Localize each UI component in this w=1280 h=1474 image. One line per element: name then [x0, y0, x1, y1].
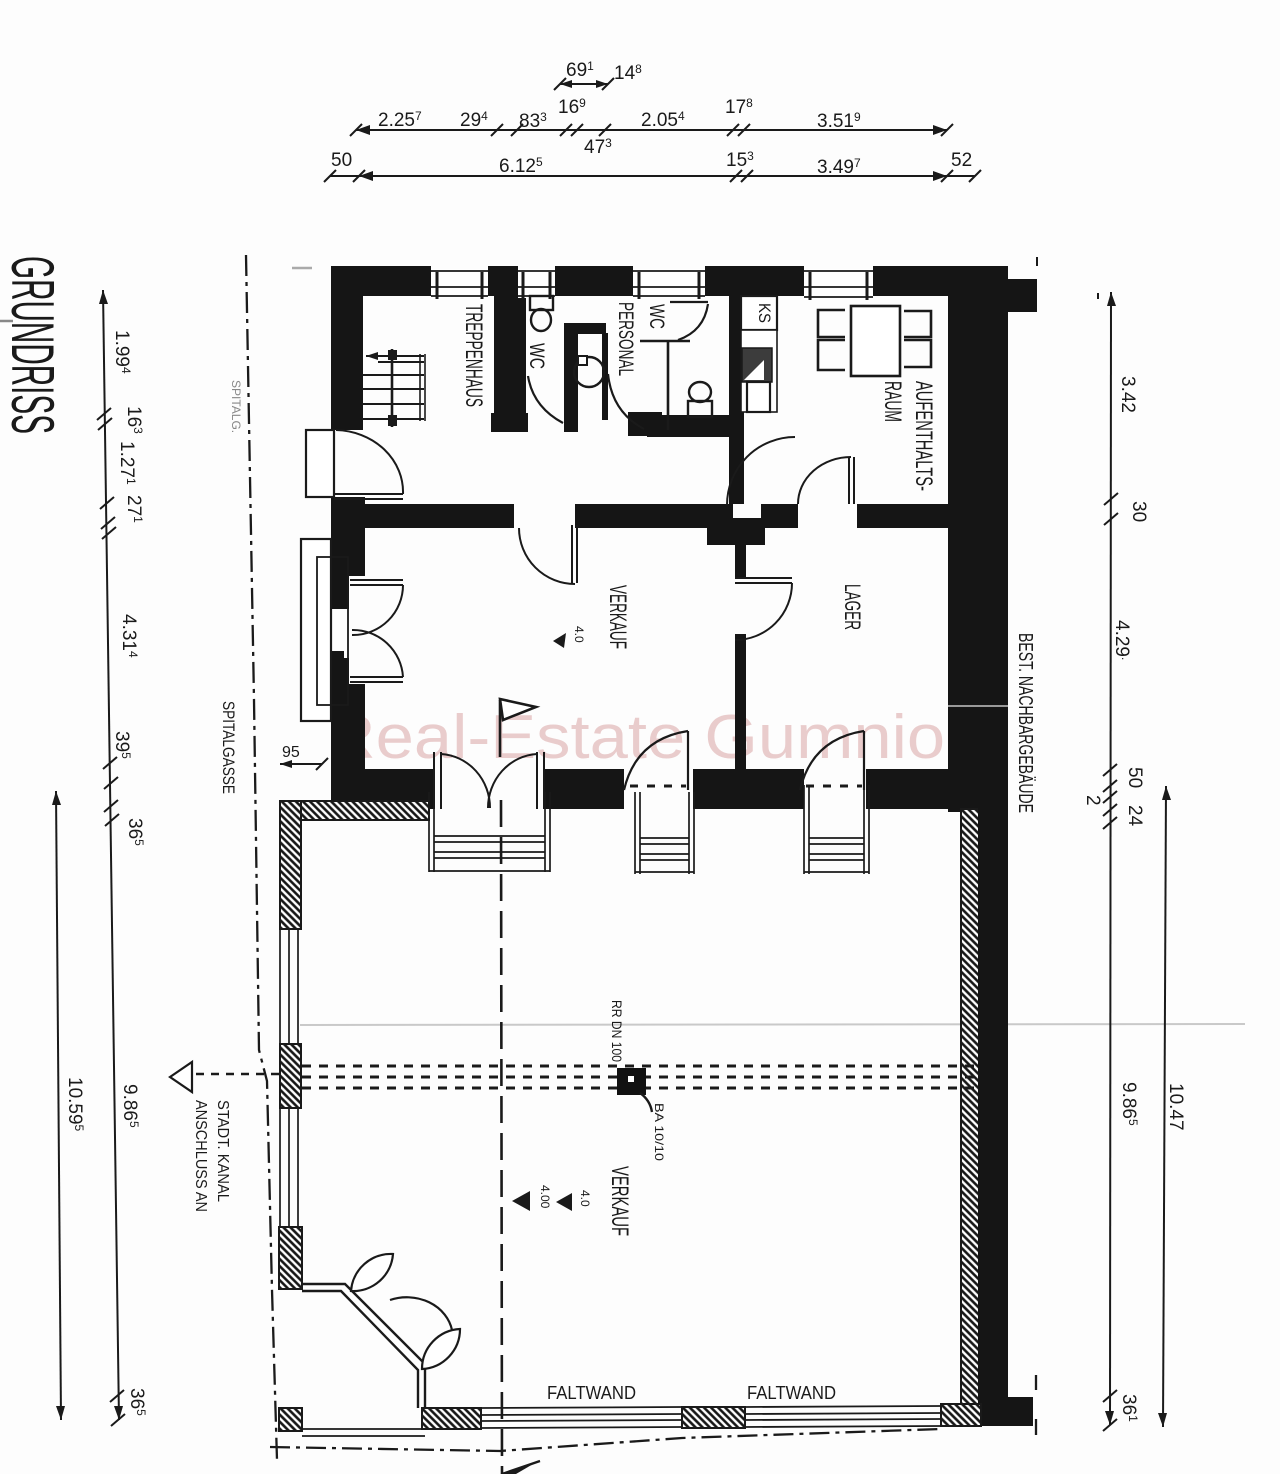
- svg-text:50: 50: [331, 150, 352, 171]
- svg-text:VERKAUF: VERKAUF: [604, 585, 631, 649]
- svg-text:SPITALGASSE: SPITALGASSE: [219, 701, 238, 794]
- svg-text:50: 50: [1124, 767, 1145, 788]
- svg-text:VERKAUF: VERKAUF: [606, 1166, 633, 1236]
- svg-text:LAGER: LAGER: [840, 584, 865, 630]
- svg-text:FALTWAND: FALTWAND: [747, 1383, 836, 1403]
- svg-text:4.0: 4.0: [578, 1190, 592, 1207]
- svg-text:95: 95: [282, 744, 300, 761]
- svg-text:FALTWAND: FALTWAND: [547, 1383, 636, 1403]
- svg-text:10.595: 10.595: [64, 1077, 86, 1132]
- svg-text:BEST. NACHBARGEBÄUDE: BEST. NACHBARGEBÄUDE: [1014, 633, 1036, 813]
- svg-text:52: 52: [951, 150, 972, 171]
- svg-text:AUFENTHALTS-: AUFENTHALTS-: [910, 381, 937, 491]
- svg-text:RAUM: RAUM: [879, 381, 906, 422]
- svg-text:STADT. KANAL: STADT. KANAL: [214, 1100, 231, 1202]
- svg-text:GRUNDRISS: GRUNDRISS: [0, 256, 66, 434]
- svg-text:WC: WC: [645, 304, 668, 329]
- svg-text:2: 2: [1082, 795, 1103, 806]
- svg-text:3.42: 3.42: [1117, 376, 1138, 413]
- svg-text:ANSCHLUSS AN: ANSCHLUSS AN: [192, 1100, 209, 1212]
- svg-text:RR DN 100: RR DN 100: [609, 1000, 625, 1062]
- svg-text:SPITALG.: SPITALG.: [229, 380, 243, 433]
- svg-text:4.00: 4.00: [538, 1185, 552, 1209]
- svg-text:PERSONAL: PERSONAL: [614, 302, 637, 376]
- svg-text:WC: WC: [525, 343, 548, 369]
- svg-text:TREPPENHAUS: TREPPENHAUS: [460, 304, 487, 407]
- svg-text:4.29.: 4.29.: [1111, 620, 1133, 660]
- svg-text:10.47: 10.47: [1165, 1083, 1186, 1131]
- svg-text:BA 10/10: BA 10/10: [652, 1103, 666, 1161]
- svg-text:KS: KS: [755, 303, 774, 323]
- svg-text:24: 24: [1124, 805, 1145, 827]
- svg-text:Real-Estate Gumnior: Real-Estate Gumnior: [326, 703, 968, 772]
- svg-text:4.0: 4.0: [572, 626, 586, 643]
- svg-text:30: 30: [1128, 501, 1149, 522]
